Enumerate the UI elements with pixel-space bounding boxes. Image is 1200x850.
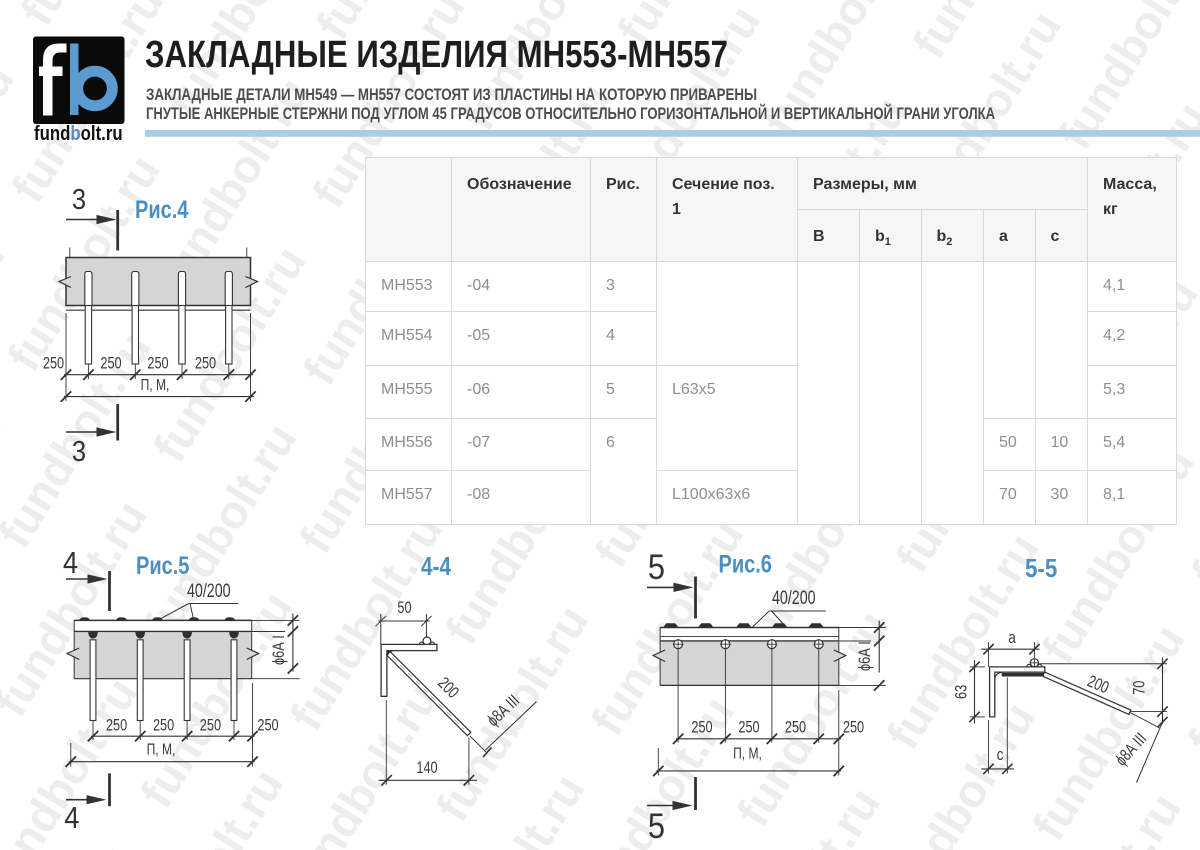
svg-text:П, М,: П, М, xyxy=(141,376,170,394)
svg-text:250: 250 xyxy=(843,718,864,737)
svg-text:63: 63 xyxy=(952,685,971,699)
svg-text:40/200: 40/200 xyxy=(187,580,231,601)
svg-text:4: 4 xyxy=(64,801,79,835)
svg-text:250: 250 xyxy=(785,718,806,737)
svg-text:3: 3 xyxy=(72,182,86,215)
svg-text:5: 5 xyxy=(648,806,665,845)
svg-text:Рис.4: Рис.4 xyxy=(135,196,189,224)
svg-text:ЗАКЛАДНЫЕ ИЗДЕЛИЯ МН553-МН557: ЗАКЛАДНЫЕ ИЗДЕЛИЯ МН553-МН557 xyxy=(145,34,728,76)
svg-text:ϕ8А III: ϕ8А III xyxy=(483,691,523,730)
svg-text:250: 250 xyxy=(43,354,64,373)
svg-text:250: 250 xyxy=(738,718,759,737)
svg-text:250: 250 xyxy=(257,716,278,735)
svg-text:c: c xyxy=(997,746,1004,765)
svg-text:250: 250 xyxy=(147,354,168,373)
svg-text:50: 50 xyxy=(397,598,411,617)
svg-text:П, М,: П, М, xyxy=(147,740,176,758)
svg-text:П, М,: П, М, xyxy=(733,744,762,762)
svg-text:a: a xyxy=(1008,629,1016,648)
svg-text:ЗАКЛАДНЫЕ ДЕТАЛИ МН549 — МН557: ЗАКЛАДНЫЕ ДЕТАЛИ МН549 — МН557 СОСТОЯТ И… xyxy=(146,86,757,104)
svg-text:ГНУТЫЕ АНКЕРНЫЕ СТЕРЖНИ ПОД УГ: ГНУТЫЕ АНКЕРНЫЕ СТЕРЖНИ ПОД УГЛОМ 45 ГРА… xyxy=(146,104,995,123)
svg-text:250: 250 xyxy=(100,354,121,373)
svg-text:4-4: 4-4 xyxy=(421,552,451,581)
svg-text:250: 250 xyxy=(195,354,216,373)
svg-text:5-5: 5-5 xyxy=(1025,554,1057,583)
svg-text:70: 70 xyxy=(1130,681,1149,695)
svg-text:3: 3 xyxy=(72,434,86,467)
svg-text:5: 5 xyxy=(648,547,665,586)
svg-text:40/200: 40/200 xyxy=(772,587,816,608)
svg-text:250: 250 xyxy=(106,716,127,735)
svg-text:ϕ6А I: ϕ6А I xyxy=(269,635,288,665)
svg-text:4: 4 xyxy=(63,546,78,580)
svg-text:ϕ6А I: ϕ6А I xyxy=(855,641,874,671)
svg-text:140: 140 xyxy=(416,758,437,777)
svg-text:Рис.5: Рис.5 xyxy=(136,552,189,580)
svg-text:250: 250 xyxy=(153,716,174,735)
svg-text:200: 200 xyxy=(434,674,463,703)
svg-text:250: 250 xyxy=(200,716,221,735)
svg-text:Рис.6: Рис.6 xyxy=(719,551,772,579)
svg-text:250: 250 xyxy=(691,718,712,737)
